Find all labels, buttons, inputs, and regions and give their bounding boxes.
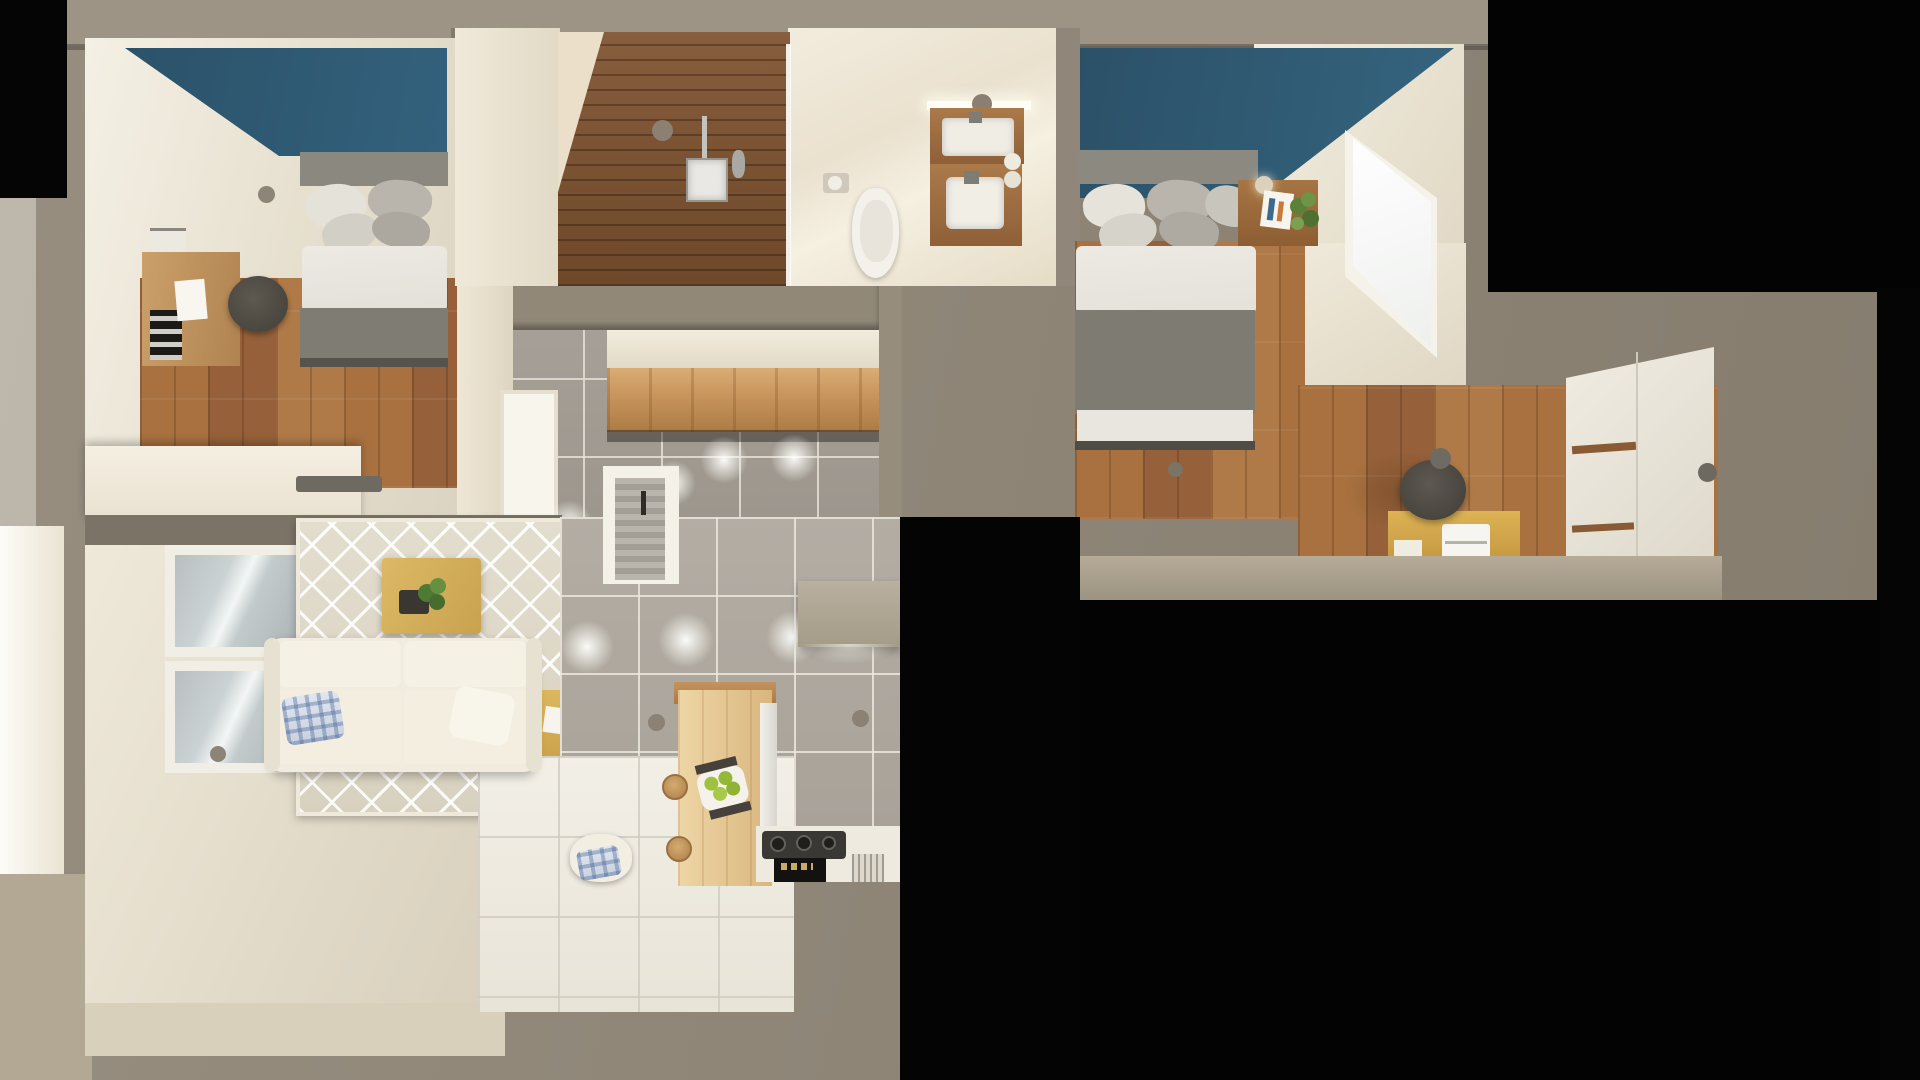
- exterior-void-top-left: [0, 0, 67, 198]
- exterior-void-bottom-center: [900, 517, 1080, 1080]
- kitchen-region: [560, 517, 902, 882]
- exterior-void-right-column: [1877, 288, 1920, 1080]
- wall-hallway-right: [879, 283, 902, 519]
- hallway-region: [505, 286, 879, 522]
- bathroom-region: [455, 28, 1080, 286]
- entry-left-glass-strip: [0, 196, 36, 536]
- bedroom-1-region: [85, 38, 457, 522]
- exterior-void-bottom-right: [1080, 600, 1880, 1080]
- apartment-floorplan-render: [0, 0, 1920, 1080]
- living-room-region: [85, 515, 562, 1012]
- entry-left-bright-door: [0, 526, 64, 876]
- entry-left-lower-wall: [0, 874, 92, 1080]
- bedroom-2-region: [1074, 44, 1877, 602]
